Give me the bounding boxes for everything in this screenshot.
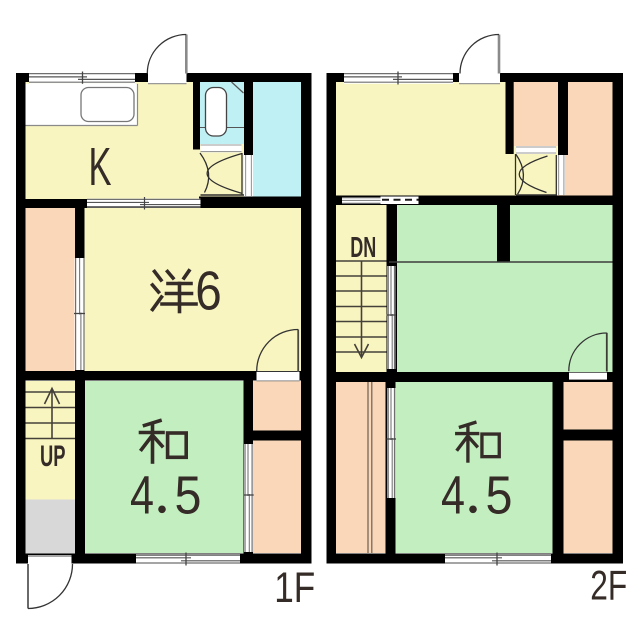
svg-text:4: 4	[130, 466, 154, 526]
svg-text:K: K	[89, 137, 112, 197]
svg-text:1F: 1F	[274, 565, 315, 612]
svg-text:UP: UP	[40, 440, 66, 473]
svg-text:DN: DN	[350, 232, 376, 264]
svg-text:6: 6	[195, 260, 222, 322]
svg-text:5: 5	[175, 466, 202, 526]
svg-text:2F: 2F	[590, 562, 627, 609]
